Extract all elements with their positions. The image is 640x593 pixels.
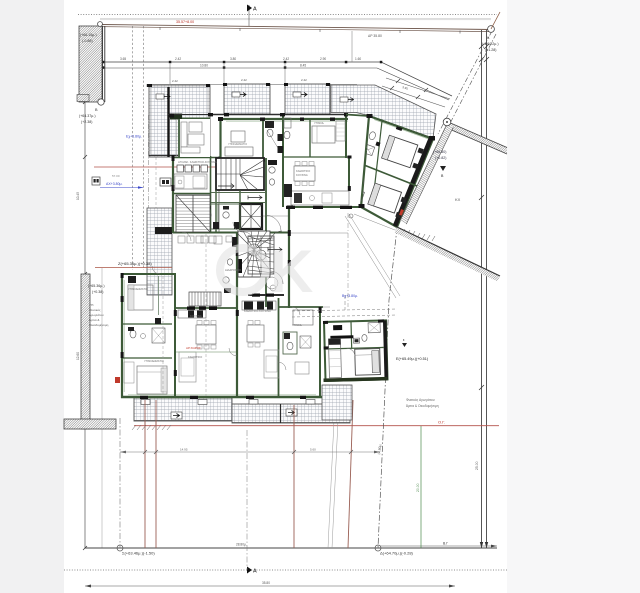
svg-text:(+2.38): (+2.38) xyxy=(81,120,93,124)
svg-text:A: A xyxy=(253,569,257,575)
svg-text:ΥΠ.: ΥΠ. xyxy=(89,303,94,307)
svg-text:ΥΠΝΟΔ.: ΥΠΝΟΔ. xyxy=(292,323,303,327)
svg-text:28.80μ.: 28.80μ. xyxy=(236,543,247,547)
svg-text:ΚΑΘΙΣΤΙΚΟ-ΚΟΥΖΙΝΑ: ΚΑΘΙΣΤΙΚΟ-ΚΟΥΖΙΝΑ xyxy=(244,309,271,313)
svg-text:5.60: 5.60 xyxy=(310,448,316,452)
svg-text:3.80: 3.80 xyxy=(230,57,236,61)
svg-text:35.80: 35.80 xyxy=(262,581,270,585)
svg-text:(+66.15μ.): (+66.15μ.) xyxy=(80,33,97,37)
svg-text:ΔΡ 35.80: ΔΡ 35.80 xyxy=(368,34,382,38)
svg-text:ΥΠΝΟΔΩΜΑΤΙΟ: ΥΠΝΟΔΩΜΑΤΙΟ xyxy=(128,287,148,291)
svg-text:ΑΡ.ΧΩΡΟΣ: ΑΡ.ΧΩΡΟΣ xyxy=(186,346,201,350)
svg-text:Οικοδομήσιμη: Οικοδομήσιμη xyxy=(89,323,109,327)
svg-text:(-0.88): (-0.88) xyxy=(82,39,93,43)
svg-text:2.42: 2.42 xyxy=(301,78,307,82)
svg-text:14.95: 14.95 xyxy=(180,448,188,452)
svg-text:1.60: 1.60 xyxy=(355,57,361,61)
svg-text:Άρτια &: Άρτια & xyxy=(89,318,100,322)
svg-text:20.00: 20.00 xyxy=(416,483,420,492)
svg-text:ΥΠΝΟΔ.: ΥΠΝΟΔ. xyxy=(314,121,325,125)
svg-text:ΚΧ: ΚΧ xyxy=(455,197,461,202)
svg-text:ΥΠΝΟΔΩΜΑΤΙΟ: ΥΠΝΟΔΩΜΑΤΙΟ xyxy=(144,359,164,363)
svg-text:ΑΧ+3.80μ.: ΑΧ+3.80μ. xyxy=(106,182,123,186)
svg-text:25.00: 25.00 xyxy=(475,461,479,470)
svg-text:Φυσικός: Φυσικός xyxy=(89,308,101,312)
svg-text:35.57+8.00: 35.57+8.00 xyxy=(176,20,194,24)
svg-text:(+65.36μ.): (+65.36μ.) xyxy=(88,284,105,288)
svg-text:ΑΠ.ΜΑΚ. ΚΑΘΙΣΤΙΚΟ-ΚΟΥΖΙΝΑ: ΑΠ.ΜΑΚ. ΚΑΘΙΣΤΙΚΟ-ΚΟΥΖΙΝΑ xyxy=(178,160,217,164)
svg-text:(+66/22μ.): (+66/22μ.) xyxy=(482,42,499,46)
svg-text:Β.Γ: Β.Γ xyxy=(443,542,448,546)
svg-text:ΥΠΝΟΔΩΜΑΤΙΟ: ΥΠΝΟΔΩΜΑΤΙΟ xyxy=(228,142,247,146)
svg-text:57.00: 57.00 xyxy=(112,174,120,178)
svg-text:Εχ+3.80μ.: Εχ+3.80μ. xyxy=(126,135,142,139)
svg-text:Ε(+65.49μ.)(+0.51): Ε(+65.49μ.)(+0.51) xyxy=(396,357,429,361)
svg-text:2.42: 2.42 xyxy=(283,57,289,61)
svg-text:10.45: 10.45 xyxy=(76,192,80,200)
svg-text:Φυσικός Αγωγιάτου: Φυσικός Αγωγιάτου xyxy=(406,398,435,402)
svg-text:(+64.37μ.): (+64.37μ.) xyxy=(79,114,96,118)
svg-text:Ζ(+65.36μ.)(+0.38): Ζ(+65.36μ.)(+0.38) xyxy=(118,261,152,266)
svg-text:Άρτια & Οικοδομήσιμη: Άρτια & Οικοδομήσιμη xyxy=(406,404,439,408)
svg-text:ΔΙΑΔΡΟΜΟΣ: ΔΙΑΔΡΟΜΟΣ xyxy=(225,268,241,272)
svg-text:12.60: 12.60 xyxy=(76,352,80,360)
svg-text:ΚΟΥΖΙΝΑ: ΚΟΥΖΙΝΑ xyxy=(190,314,202,318)
svg-text:ΚΑΘΙΣΤΙΚΟ: ΚΑΘΙΣΤΙΚΟ xyxy=(296,169,310,173)
svg-text:10.80: 10.80 xyxy=(200,64,208,68)
svg-text:A: A xyxy=(253,7,257,13)
svg-text:Αγωγιάτου: Αγωγιάτου xyxy=(89,313,104,317)
svg-text:2.42: 2.42 xyxy=(241,78,247,82)
svg-text:ΚΑΘΙΣΤΙΚΟ: ΚΑΘΙΣΤΙΚΟ xyxy=(188,355,202,359)
svg-text:(+1.28): (+1.28) xyxy=(485,48,497,52)
svg-text:ΚΟΥΖΙΝΑ: ΚΟΥΖΙΝΑ xyxy=(296,173,308,177)
svg-text:Ο.Γ.: Ο.Γ. xyxy=(438,420,445,425)
svg-text:3.65: 3.65 xyxy=(120,57,126,61)
svg-text:2.42: 2.42 xyxy=(172,79,178,83)
svg-text:2.42: 2.42 xyxy=(175,57,181,61)
svg-text:(+66.80): (+66.80) xyxy=(433,150,447,154)
svg-text:(+0.38): (+0.38) xyxy=(92,290,104,294)
svg-text:K: K xyxy=(270,238,313,305)
svg-text:8.45: 8.45 xyxy=(300,64,306,68)
svg-text:(+0.82): (+0.82) xyxy=(435,156,447,160)
svg-text:Δ(+64.70μ.)(-0.28): Δ(+64.70μ.)(-0.28) xyxy=(380,551,414,556)
svg-text:2.90: 2.90 xyxy=(320,57,326,61)
svg-text:Σ(+63.46μ.)(-1.50): Σ(+63.46μ.)(-1.50) xyxy=(122,551,155,556)
svg-text:Βχ+3.80μ.: Βχ+3.80μ. xyxy=(342,294,358,298)
